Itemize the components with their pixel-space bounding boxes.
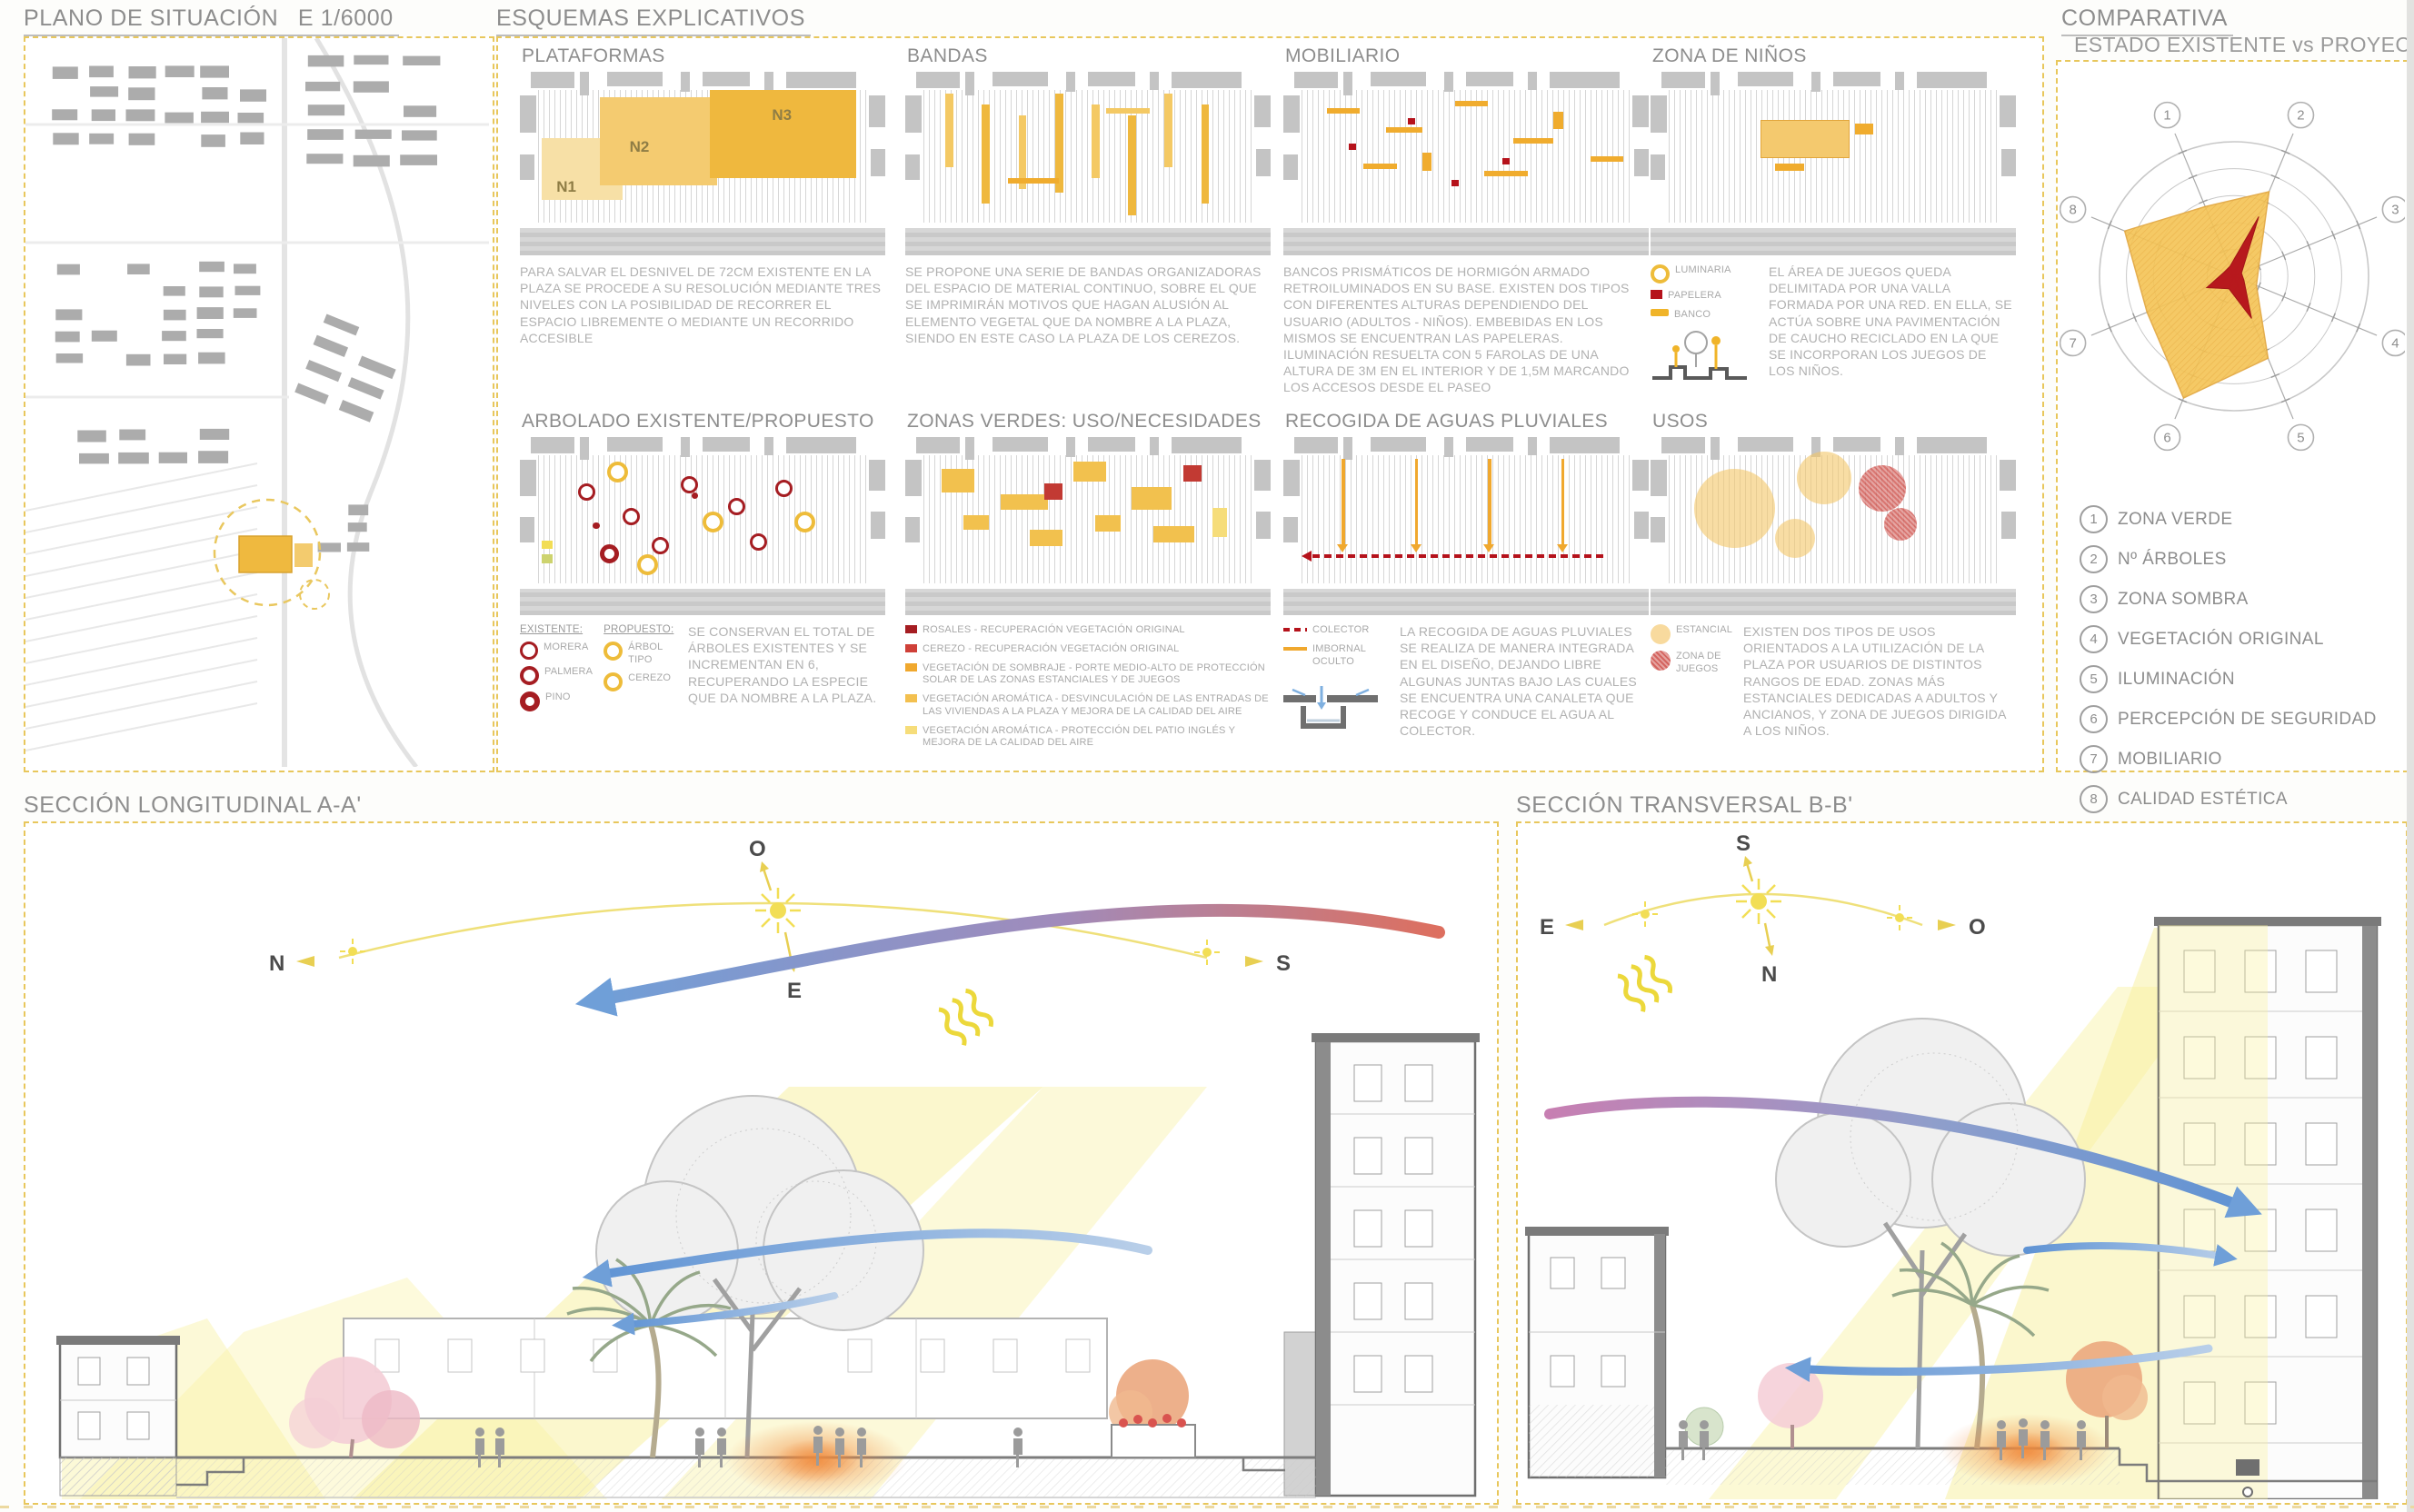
usos-legend: ESTANCIAL ZONA DE JUEGOS xyxy=(1651,623,1734,739)
building-block xyxy=(965,72,974,95)
paseo-band xyxy=(1283,589,1649,615)
paseo-band xyxy=(1651,228,2016,255)
overlay-shape xyxy=(1775,519,1815,558)
tree-ring-icon xyxy=(652,537,669,554)
overlay-shape xyxy=(1342,459,1345,544)
overlay-shape xyxy=(1761,120,1850,158)
building-block xyxy=(1283,95,1300,132)
mobiliario-legend: LUMINARIA PAPELERA BANCO xyxy=(1651,264,1760,389)
overlay-shape xyxy=(1455,101,1488,106)
mobiliario-text: BANCOS PRISMÁTICOS DE HORMIGÓN ARMADO RE… xyxy=(1283,264,1649,396)
svg-text:4: 4 xyxy=(2391,335,2399,351)
building-block xyxy=(703,437,750,452)
building-block xyxy=(1738,437,1792,452)
overlay-shape xyxy=(1044,483,1062,500)
legend-item-palmera: PALMERA xyxy=(520,665,593,685)
legend-item-cerezo: CEREZO xyxy=(603,671,679,691)
svg-text:7: 7 xyxy=(2069,335,2076,351)
schema-usos: USOS ESTANCIAL ZONA DE JUEGOS EXISTEN DO… xyxy=(1651,411,2016,739)
building-block xyxy=(1833,437,1880,452)
overlay-shape xyxy=(710,90,856,178)
overlay-shape xyxy=(1488,459,1491,544)
schema-arbolado-title: ARBOLADO EXISTENTE/PROPUESTO xyxy=(522,411,885,433)
building-block xyxy=(1343,437,1352,460)
overlay-shape xyxy=(1484,171,1528,176)
luminaria-icon xyxy=(1651,264,1670,283)
building-block xyxy=(1283,154,1298,180)
building-block xyxy=(1632,460,1649,490)
comparativa-subtitle: ESTADO EXISTENTE vs PROYECTADO xyxy=(2074,33,2414,57)
building-block xyxy=(871,149,885,176)
arbolado-diagram xyxy=(520,437,885,615)
arbolado-legend: EXISTENTE: MORERA PALMERA PINO xyxy=(520,623,679,717)
building-block xyxy=(1256,512,1271,538)
overlay-shape xyxy=(542,554,553,563)
sun-path: N O E S xyxy=(269,837,1291,1003)
comp-item-8: 8CALIDAD ESTÉTICA xyxy=(2080,785,2377,813)
usos-diagram xyxy=(1651,437,2016,615)
overlay-shape xyxy=(593,522,599,529)
building-block xyxy=(580,437,589,460)
overlay-shape xyxy=(945,94,953,167)
overlay-shape xyxy=(1132,487,1172,510)
overlay-shape xyxy=(1001,494,1048,511)
building-block xyxy=(520,154,534,180)
sun-path: E S N O xyxy=(1540,831,1986,987)
overlay-shape xyxy=(1797,452,1851,505)
building-block xyxy=(1254,460,1271,490)
legend-item-papelera: PAPELERA xyxy=(1651,289,1760,303)
tree-ring-icon xyxy=(728,498,745,515)
recogida-legend: COLECTOR IMBORNAL OCULTO xyxy=(1283,623,1391,750)
bandas-text: SE PROPONE UNA SERIE DE BANDAS ORGANIZAD… xyxy=(905,264,1271,346)
schema-zonas-verdes-title: ZONAS VERDES: USO/NECESIDADES xyxy=(907,411,1271,433)
aromatica1-swatch-icon xyxy=(905,694,917,702)
left-arrow-icon xyxy=(1302,551,1312,562)
overlay-shape xyxy=(1212,508,1227,536)
arbol-tipo-icon xyxy=(603,642,623,661)
street-furniture-sketch-icon xyxy=(1651,327,1751,385)
site-plan-scale: E 1/6000 xyxy=(298,5,394,31)
comp-item-7: 7MOBILIARIO xyxy=(2080,745,2377,773)
building-block xyxy=(1150,72,1159,90)
overlay-shape xyxy=(542,541,553,550)
overlay-shape xyxy=(1128,115,1136,214)
comparativa-title: COMPARATIVA xyxy=(2061,5,2233,36)
building-block xyxy=(1444,437,1453,457)
building-block xyxy=(1371,437,1425,452)
building-block xyxy=(869,460,885,490)
esquemas-frame: PLATAFORMAS N1N2N3 PARA SALVAR EL DESNIV… xyxy=(496,36,2044,772)
schema-mobiliario: MOBILIARIO BANCOS PRISMÁTICOS DE HORMIGÓ… xyxy=(1283,45,1649,396)
building-block xyxy=(1088,72,1135,86)
building-block xyxy=(1811,72,1820,92)
building-block xyxy=(916,72,960,88)
overlay-shape xyxy=(1855,124,1873,134)
building-block xyxy=(905,95,922,132)
building-block xyxy=(1917,72,1986,88)
legend-item-colector: COLECTOR xyxy=(1283,623,1391,637)
overlay-shape xyxy=(1092,104,1100,178)
overlay-shape xyxy=(1513,138,1553,144)
paseo-band xyxy=(520,589,885,615)
estancial-icon xyxy=(1651,624,1671,644)
platform-label: N3 xyxy=(772,106,792,124)
building-block xyxy=(1550,437,1619,453)
building-block xyxy=(764,437,773,455)
overlay-shape xyxy=(692,492,698,499)
aromatica2-swatch-icon xyxy=(905,726,917,734)
paseo-band xyxy=(1651,589,2016,615)
building-block xyxy=(2000,460,2016,490)
seccion-longitudinal-title: SECCIÓN LONGITUDINAL A-A' xyxy=(24,792,367,823)
building-block xyxy=(1066,72,1075,92)
overlay-shape xyxy=(1008,178,1059,184)
site-plan-frame xyxy=(24,36,494,772)
building-block xyxy=(580,72,589,95)
legend-item-sombraje: VEGETACIÓN DE SOMBRAJE - PORTE MEDIO-ALT… xyxy=(905,661,1271,688)
building-block xyxy=(1466,437,1513,452)
building-block xyxy=(1651,95,1667,132)
legend-item-imbornal: IMBORNAL OCULTO xyxy=(1283,642,1391,669)
down-arrow-icon xyxy=(1337,544,1348,552)
building-block xyxy=(1172,72,1241,88)
building-block xyxy=(2001,512,2016,538)
background-building xyxy=(344,1318,1107,1418)
compass-label: O xyxy=(1969,915,1986,940)
usos-text: EXISTEN DOS TIPOS DE USOS ORIENTADOS A L… xyxy=(1743,623,2016,739)
comp-item-5: 5ILUMINACIÓN xyxy=(2080,665,2377,693)
overlay-shape xyxy=(1030,530,1062,546)
planter xyxy=(1112,1425,1195,1457)
overlay-shape xyxy=(942,469,974,492)
tree-ring-icon xyxy=(623,508,640,525)
radar-chart: 12345678 xyxy=(2060,65,2405,489)
overlay-shape xyxy=(1153,526,1193,542)
building-block xyxy=(1254,95,1271,126)
site-plan-title: PLANO DE SITUACIÓN E 1/6000 xyxy=(24,5,399,36)
building-block xyxy=(1066,437,1075,457)
building-block xyxy=(2000,95,2016,126)
building-block xyxy=(1833,72,1880,86)
svg-text:1: 1 xyxy=(2163,108,2170,124)
overlay-shape xyxy=(600,97,717,185)
building-block xyxy=(1371,72,1425,86)
building-block xyxy=(1088,437,1135,452)
building-block xyxy=(1632,95,1649,126)
compass-label: E xyxy=(787,979,802,1003)
overlay-shape xyxy=(1553,112,1562,128)
building-block xyxy=(681,72,690,92)
building-block xyxy=(1895,437,1904,455)
building-block xyxy=(607,437,662,452)
building-block xyxy=(1444,72,1453,92)
compass-label: E xyxy=(1540,915,1554,940)
building-block xyxy=(869,95,885,126)
bottom-dotted-line xyxy=(0,1506,2414,1508)
overlay-shape xyxy=(1422,153,1431,171)
building-block xyxy=(905,154,920,180)
building-block xyxy=(1651,460,1667,495)
tree-ring-icon xyxy=(637,554,658,575)
overlay-shape xyxy=(1561,459,1565,544)
comp-item-4: 4VEGETACIÓN ORIGINAL xyxy=(2080,625,2377,653)
rosales-swatch-icon xyxy=(905,625,917,633)
site-plan-map xyxy=(25,38,489,767)
building-block xyxy=(1651,154,1665,180)
building-block xyxy=(1738,72,1792,86)
bandas-diagram xyxy=(905,72,1271,255)
building-block xyxy=(1711,437,1720,460)
building-block xyxy=(520,517,534,542)
paseo-band xyxy=(1283,228,1649,255)
schema-zonas-verdes: ZONAS VERDES: USO/NECESIDADES ROSALES - … xyxy=(905,411,1271,755)
overlay-shape xyxy=(1775,164,1804,171)
schema-plataformas-title: PLATAFORMAS xyxy=(522,45,885,67)
zona-ninos-text: EL ÁREA DE JUEGOS QUEDA DELIMITADA POR U… xyxy=(1769,264,2016,389)
building-block xyxy=(1661,437,1705,453)
mobiliario-diagram xyxy=(1283,72,1649,255)
legend-item-luminaria: LUMINARIA xyxy=(1651,264,1760,283)
building-block xyxy=(764,72,773,90)
compass-label: N xyxy=(1761,962,1777,987)
map-highlight-plaza xyxy=(239,536,292,572)
legend-item-morera: MORERA xyxy=(520,641,593,660)
schema-bandas-title: BANDAS xyxy=(907,45,1271,67)
tree-ring-icon xyxy=(681,476,698,493)
building-block xyxy=(1150,437,1159,455)
comparativa-frame: 12345678 1ZONA VERDE 2Nº ÁRBOLES 3ZONA S… xyxy=(2056,60,2409,772)
paseo-band xyxy=(905,589,1271,615)
morera-icon xyxy=(520,642,538,660)
left-building-section xyxy=(56,1336,180,1496)
schema-mobiliario-title: MOBILIARIO xyxy=(1285,45,1649,67)
building-block xyxy=(531,437,574,453)
building-block xyxy=(1917,437,1986,453)
building-block xyxy=(786,437,855,453)
building-block xyxy=(520,460,536,495)
comp-item-1: 1ZONA VERDE xyxy=(2080,505,2377,533)
building-block xyxy=(905,460,922,495)
esquemas-title-text: ESQUEMAS EXPLICATIVOS xyxy=(496,5,805,31)
legend-item-cerezo-verde: CEREZO - RECUPERACIÓN VEGETACIÓN ORIGINA… xyxy=(905,642,1271,656)
building-block xyxy=(1283,460,1300,495)
banco-icon xyxy=(1651,309,1669,316)
building-block xyxy=(916,437,960,453)
building-block xyxy=(1283,517,1298,542)
overlay-shape xyxy=(1312,554,1605,558)
legend-item-arbol-tipo: ÁRBOL TIPO xyxy=(603,641,679,667)
plataformas-diagram: N1N2N3 xyxy=(520,72,885,255)
plataformas-text: PARA SALVAR EL DESNIVEL DE 72CM EXISTENT… xyxy=(520,264,885,346)
papelera-icon xyxy=(1651,290,1662,299)
seccion-transversal-frame: E S N O xyxy=(1516,821,2408,1505)
building-block xyxy=(531,72,574,88)
comp-item-3: 3ZONA SOMBRA xyxy=(2080,585,2377,613)
overlay-shape xyxy=(1591,156,1623,162)
building-block xyxy=(993,72,1047,86)
overlay-shape xyxy=(1202,104,1210,204)
schema-zona-ninos-title: ZONA DE NIÑOS xyxy=(1652,45,2016,67)
overlay-shape xyxy=(1363,164,1396,169)
legend-item-estancial: ESTANCIAL xyxy=(1651,623,1734,644)
cerezo-icon xyxy=(603,672,623,691)
building-block xyxy=(1550,72,1619,88)
overlay-shape xyxy=(1694,469,1774,547)
zona-ninos-diagram xyxy=(1651,72,2016,255)
schema-zona-ninos: ZONA DE NIÑOS LUMINARIA PAPELERA BANCO xyxy=(1651,45,2016,389)
building-block xyxy=(1528,437,1537,455)
svg-text:8: 8 xyxy=(2069,203,2076,218)
overlay-shape xyxy=(1415,459,1419,544)
compass-label: O xyxy=(749,837,766,861)
overlay-shape xyxy=(1095,515,1121,532)
legend-item-rosales: ROSALES - RECUPERACIÓN VEGETACIÓN ORIGIN… xyxy=(905,623,1271,637)
legend-item-aromatica-2: VEGETACIÓN AROMÁTICA - PROTECCIÓN DEL PA… xyxy=(905,724,1271,751)
colector-icon xyxy=(1283,628,1307,632)
canaleta-section-icon xyxy=(1283,679,1378,746)
building-block xyxy=(786,72,855,88)
building-block xyxy=(965,437,974,460)
right-building-section xyxy=(2154,917,2381,1499)
compass-label: S xyxy=(1736,831,1751,856)
overlay-shape xyxy=(1327,108,1360,114)
building-block xyxy=(2001,149,2016,176)
building-block xyxy=(703,72,750,86)
presentation-board: PLANO DE SITUACIÓN E 1/6000 ESQUEMAS EXP… xyxy=(0,0,2414,1512)
zonas-verdes-diagram xyxy=(905,437,1271,615)
seccion-transversal-drawing: E S N O xyxy=(1518,823,2402,1499)
building-block xyxy=(1256,149,1271,176)
overlay-shape xyxy=(1502,158,1510,164)
heat-waves-icon xyxy=(1614,955,1672,1014)
recogida-text: LA RECOGIDA DE AGUAS PLUVIALES SE REALIZ… xyxy=(1400,623,1649,750)
recogida-diagram xyxy=(1283,437,1649,615)
right-building-section xyxy=(1284,1033,1480,1496)
schema-bandas: BANDAS SE PROPONE UNA SERIE DE BANDAS OR… xyxy=(905,45,1271,346)
esquemas-title: ESQUEMAS EXPLICATIVOS xyxy=(496,5,811,36)
building-block xyxy=(1651,517,1665,542)
compass-label: S xyxy=(1276,951,1291,976)
building-block xyxy=(1661,72,1705,88)
seccion-longitudinal-frame: N O E S xyxy=(24,821,1499,1505)
down-arrow-icon xyxy=(1483,544,1494,552)
schema-arbolado: ARBOLADO EXISTENTE/PROPUESTO EXISTENTE: … xyxy=(520,411,885,717)
overlay-shape xyxy=(1386,127,1422,133)
svg-text:5: 5 xyxy=(2297,430,2304,445)
tree-ring-icon xyxy=(600,544,619,563)
overlay-shape xyxy=(1408,118,1415,124)
tree-ring-icon xyxy=(794,512,815,532)
building-block xyxy=(607,72,662,86)
schema-recogida: RECOGIDA DE AGUAS PLUVIALES COLECTOR IMB… xyxy=(1283,411,1649,750)
overlay-shape xyxy=(1884,508,1917,540)
overlay-shape xyxy=(1183,465,1202,482)
left-building-section xyxy=(1525,1227,1669,1477)
sombraje-swatch-icon xyxy=(905,663,917,671)
comparativa-legend: 1ZONA VERDE 2Nº ÁRBOLES 3ZONA SOMBRA 4VE… xyxy=(2080,505,2377,825)
building-block xyxy=(1294,437,1338,453)
building-block xyxy=(1634,149,1649,176)
overlay-shape xyxy=(1164,94,1172,167)
legend-item-zona-juegos: ZONA DE JUEGOS xyxy=(1651,650,1734,676)
building-block xyxy=(993,437,1047,452)
cerezo-swatch-icon xyxy=(905,644,917,652)
schema-usos-title: USOS xyxy=(1652,411,2016,433)
building-block xyxy=(1294,72,1338,88)
pino-icon xyxy=(520,691,540,711)
paseo-band xyxy=(905,228,1271,255)
platform-label: N1 xyxy=(556,178,576,196)
building-block xyxy=(1343,72,1352,95)
tree-ring-icon xyxy=(750,533,767,551)
building-block xyxy=(1895,72,1904,90)
legend-item-banco: BANCO xyxy=(1651,308,1760,322)
svg-text:2: 2 xyxy=(2297,108,2304,124)
schema-plataformas: PLATAFORMAS N1N2N3 PARA SALVAR EL DESNIV… xyxy=(520,45,885,346)
building-block xyxy=(1634,512,1649,538)
overlay-shape xyxy=(963,515,989,530)
down-arrow-icon xyxy=(1557,544,1568,552)
paseo-band xyxy=(520,228,885,255)
overlay-shape xyxy=(1106,108,1150,114)
heat-waves-icon xyxy=(935,989,993,1048)
overlay-shape xyxy=(1451,180,1459,186)
svg-text:3: 3 xyxy=(2391,203,2399,218)
plaza-hatch xyxy=(1302,455,1631,583)
down-arrow-icon xyxy=(1411,544,1421,552)
building-block xyxy=(905,517,920,542)
building-block xyxy=(681,437,690,457)
overlay-shape xyxy=(982,104,990,204)
site-plan-title-text: PLANO DE SITUACIÓN xyxy=(24,5,278,31)
comp-item-6: 6PERCEPCIÓN DE SEGURIDAD xyxy=(2080,705,2377,733)
legend-item-pino: PINO xyxy=(520,691,593,711)
palmera-icon xyxy=(520,666,539,685)
zona-juegos-icon xyxy=(1651,651,1671,671)
compass-label: N xyxy=(269,951,284,976)
building-block xyxy=(1466,72,1513,86)
building-block xyxy=(1711,72,1720,95)
svg-text:6: 6 xyxy=(2163,430,2170,445)
building-block xyxy=(871,512,885,538)
overlay-shape xyxy=(1349,144,1356,150)
zonas-verdes-legend: ROSALES - RECUPERACIÓN VEGETACIÓN ORIGIN… xyxy=(905,623,1271,750)
overlay-shape xyxy=(1073,462,1106,482)
comp-item-2: 2Nº ÁRBOLES xyxy=(2080,545,2377,573)
building-block xyxy=(1172,437,1241,453)
arbolado-text: SE CONSERVAN EL TOTAL DE ÁRBOLES EXISTEN… xyxy=(688,623,885,717)
building-block xyxy=(1528,72,1537,90)
seccion-transversal-title: SECCIÓN TRANSVERSAL B-B' xyxy=(1516,792,1859,823)
platform-label: N2 xyxy=(630,138,650,156)
imbornal-icon xyxy=(1283,647,1307,651)
board-edge xyxy=(2407,0,2414,1512)
legend-item-aromatica-1: VEGETACIÓN AROMÁTICA - DESVINCULACIÓN DE… xyxy=(905,692,1271,719)
seccion-longitudinal-drawing: N O E S xyxy=(25,823,1493,1499)
schema-recogida-title: RECOGIDA DE AGUAS PLUVIALES xyxy=(1285,411,1649,433)
building-block xyxy=(520,95,536,132)
